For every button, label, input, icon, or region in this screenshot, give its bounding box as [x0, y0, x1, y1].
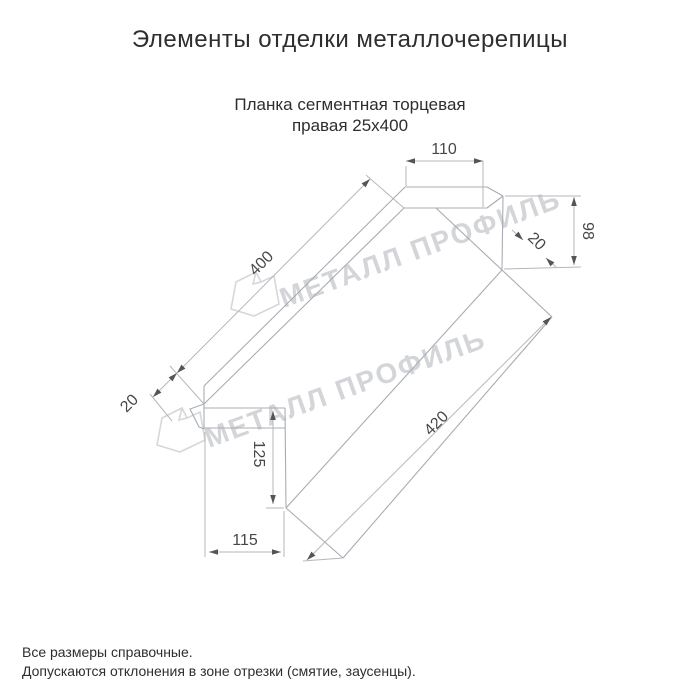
dim-label-right-end-height: 98 [578, 222, 596, 240]
footer-note-1: Все размеры справочные. [22, 644, 193, 660]
watermark-text-upper: МЕТАЛЛ ПРОФИЛЬ [275, 183, 565, 314]
dim-label-bottom-flange-width: 115 [232, 532, 258, 550]
technical-drawing: МЕТАЛЛ ПРОФИЛЬ МЕТАЛЛ ПРОФИЛЬ [0, 0, 700, 700]
footer-note-2: Допускаются отклонения в зоне отрезки (с… [22, 663, 416, 679]
dim-label-top-flange-width: 110 [431, 141, 457, 159]
metall-profil-logo-icon [157, 408, 205, 452]
drawing-page: { "title": "Элементы отделки металлочере… [0, 0, 700, 700]
watermark-text-lower: МЕТАЛЛ ПРОФИЛЬ [200, 323, 490, 454]
dim-label-left-end-height: 125 [249, 441, 267, 468]
